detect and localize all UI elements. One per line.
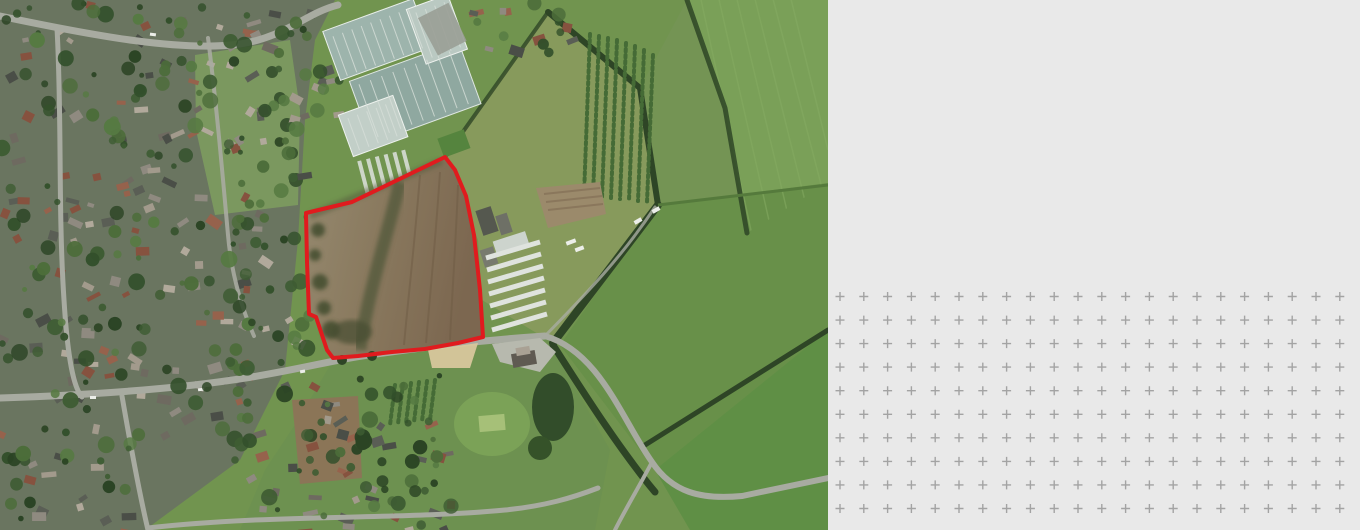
aerial-map[interactable] <box>0 0 828 530</box>
blank-panel <box>828 0 1360 530</box>
plus-grid-pattern <box>828 0 1360 530</box>
aerial-map-image <box>0 0 828 530</box>
site-location-figure <box>0 0 1360 530</box>
